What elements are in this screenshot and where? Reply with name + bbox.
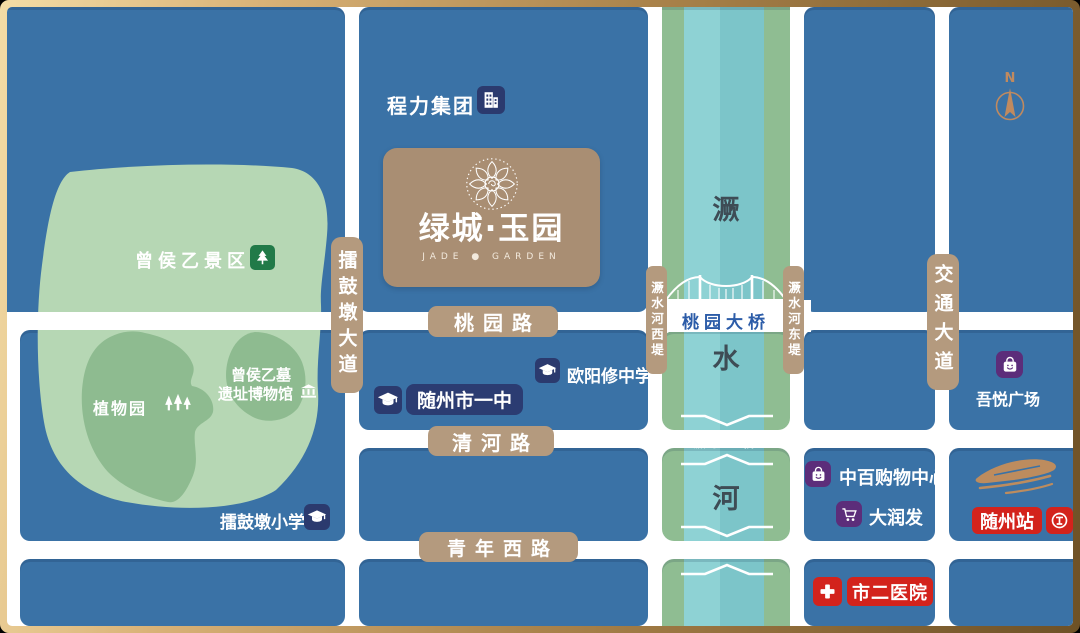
jade-garden-emblem-icon	[464, 156, 520, 212]
location-map: 㵐 水 河 桃园大桥 㵐水二桥 青年路大桥 桃园路 清河路 青年西路 擂鼓墩大道…	[0, 0, 1080, 633]
city-block	[359, 448, 648, 541]
bridge-mark-icon	[679, 453, 775, 467]
shopping-bag-icon	[996, 351, 1023, 378]
compass-north-label: N	[990, 71, 1030, 86]
city-block	[804, 7, 935, 312]
river-name-char: 河	[662, 477, 790, 516]
scenic-park-area	[30, 160, 342, 516]
river-name-char: 㵐	[662, 188, 790, 227]
office-building-icon	[477, 86, 505, 114]
east-dike-label: 㵐水河东堤	[783, 266, 804, 374]
city-block	[359, 559, 648, 626]
bridge-mark-icon	[679, 563, 775, 577]
jade-garden-logo-card: 绿城·玉园 JADE ● GARDEN	[383, 148, 600, 287]
darunfa-label: 大润发	[869, 504, 923, 530]
railway-logo-icon	[1046, 507, 1073, 534]
west-dike-label: 㵐水河西堤	[646, 266, 667, 374]
trees-icon	[164, 392, 192, 414]
city-block	[20, 559, 345, 626]
map-canvas: 㵐 水 河 桃园大桥 㵐水二桥 青年路大桥 桃园路 清河路 青年西路 擂鼓墩大道…	[7, 7, 1073, 626]
chengli-group-label: 程力集团	[387, 90, 475, 119]
road-label-taoyuan: 桃园路	[428, 306, 558, 337]
scenic-area-label: 曾侯乙景区	[135, 247, 250, 273]
high-speed-train-icon	[970, 451, 1062, 497]
jueshui2-bridge-label: 㵐水二桥	[662, 432, 790, 451]
tomb-museum-label-line1: 曾侯乙墓	[231, 364, 291, 385]
museum-icon	[300, 383, 317, 399]
leigudun-primary-label: 擂鼓墩小学	[220, 508, 305, 533]
city-block	[949, 7, 1073, 312]
hospital-label: 市二医院	[847, 577, 933, 606]
compass: N	[990, 71, 1030, 130]
bridge-mark-icon	[679, 413, 775, 427]
shopping-cart-icon	[836, 501, 862, 527]
road-label-jiaotong-ave: 交通大道	[927, 254, 959, 390]
suizhou-station-label: 随州站	[972, 507, 1042, 534]
qingnian-bridge-label: 青年路大桥	[662, 542, 790, 561]
botanic-garden-label: 植物园	[93, 395, 147, 419]
project-name-en: JADE ● GARDEN	[422, 252, 561, 262]
graduation-cap-icon	[535, 358, 560, 383]
tomb-museum-label-line2: 遗址博物馆	[218, 383, 293, 404]
river-segment	[662, 7, 790, 302]
suspension-bridge-icon	[664, 273, 788, 303]
graduation-cap-icon	[304, 504, 330, 530]
taoyuan-road-over-park	[7, 312, 359, 330]
city-block	[949, 330, 1073, 430]
road-label-qingnianxi: 青年西路	[419, 532, 578, 562]
park-tree-icon	[250, 245, 275, 270]
wuyue-plaza-label: 吾悦广场	[976, 386, 1040, 410]
graduation-cap-icon	[374, 386, 402, 414]
city-block	[804, 330, 935, 430]
bridge-mark-icon	[679, 524, 775, 538]
road-label-qinghe: 清河路	[428, 426, 554, 456]
taoyuan-bridge-label: 桃园大桥	[662, 308, 790, 333]
shopping-bag-icon	[805, 461, 831, 487]
city-block	[949, 559, 1073, 626]
project-name: 绿城·玉园	[419, 214, 565, 245]
road-label-leigudun-ave: 擂鼓墩大道	[331, 237, 363, 393]
compass-needle-icon	[990, 86, 1030, 126]
zhongbai-mall-label: 中百购物中心	[839, 464, 947, 490]
ouyangxiu-school-label: 欧阳修中学	[567, 362, 652, 387]
school-no1-label: 随州市一中	[406, 384, 523, 415]
river-name-char: 水	[662, 337, 790, 376]
red-cross-icon	[813, 577, 842, 606]
